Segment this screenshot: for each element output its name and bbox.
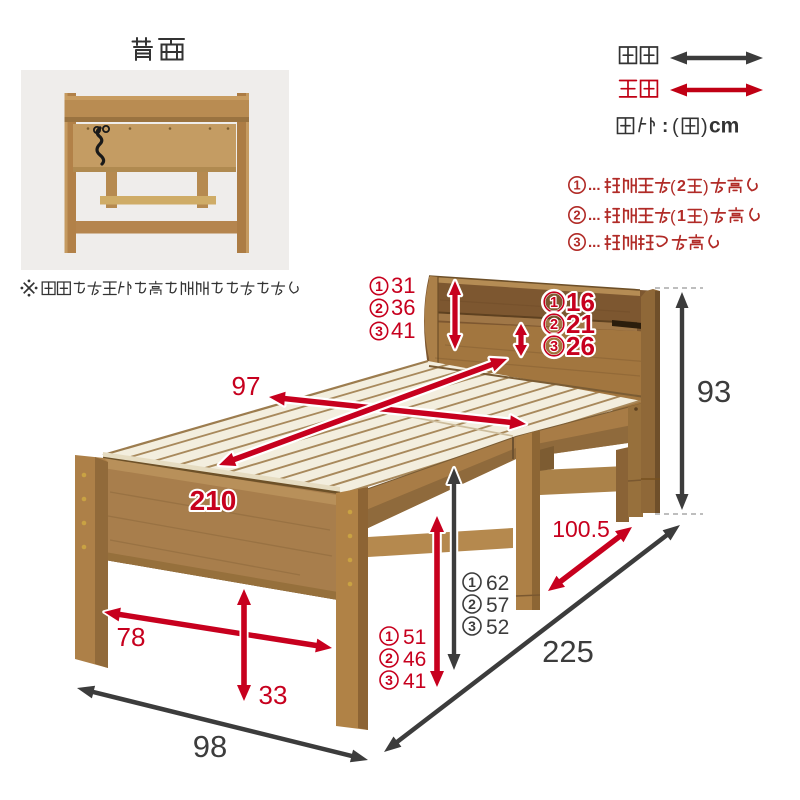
svg-text:...: ... xyxy=(588,207,601,224)
svg-text:51: 51 xyxy=(403,626,426,649)
svg-text:2: 2 xyxy=(385,650,393,666)
svg-text:52: 52 xyxy=(486,616,509,639)
svg-text:): ) xyxy=(703,207,709,226)
svg-text::: : xyxy=(662,116,668,137)
svg-text:(: ( xyxy=(672,116,679,138)
svg-text:1: 1 xyxy=(677,208,686,225)
svg-text:2: 2 xyxy=(375,300,383,316)
svg-text:100.5: 100.5 xyxy=(552,516,610,542)
svg-text:cm: cm xyxy=(709,115,739,138)
svg-text:97: 97 xyxy=(232,371,261,401)
svg-text:(: ( xyxy=(670,177,676,196)
svg-text:1: 1 xyxy=(550,295,558,311)
svg-text:(: ( xyxy=(670,207,676,226)
svg-text:3: 3 xyxy=(550,339,558,355)
svg-text:98: 98 xyxy=(193,729,227,764)
svg-text:3: 3 xyxy=(385,672,393,688)
svg-text:2: 2 xyxy=(677,178,686,195)
svg-text:225: 225 xyxy=(542,634,594,669)
svg-text:78: 78 xyxy=(117,622,146,652)
svg-text:26: 26 xyxy=(566,331,595,361)
svg-text:93: 93 xyxy=(697,374,731,409)
svg-text:2: 2 xyxy=(550,317,558,333)
svg-text:41: 41 xyxy=(391,318,415,343)
svg-text:1: 1 xyxy=(468,574,476,590)
svg-text:1: 1 xyxy=(573,178,580,193)
svg-text:...: ... xyxy=(588,177,601,194)
svg-text:1: 1 xyxy=(385,628,393,644)
svg-text:3: 3 xyxy=(468,618,476,634)
svg-text:3: 3 xyxy=(375,323,383,339)
svg-text:46: 46 xyxy=(403,648,426,671)
svg-text:3: 3 xyxy=(573,235,580,250)
svg-text:33: 33 xyxy=(259,680,288,710)
svg-text:36: 36 xyxy=(391,295,415,320)
svg-text:2: 2 xyxy=(468,596,476,612)
svg-text:): ) xyxy=(703,177,709,196)
svg-text:1: 1 xyxy=(375,278,383,294)
svg-text:62: 62 xyxy=(486,572,509,595)
svg-text:210: 210 xyxy=(190,485,237,516)
svg-text:2: 2 xyxy=(573,208,580,223)
svg-text:...: ... xyxy=(588,234,601,251)
svg-text:): ) xyxy=(701,116,708,138)
svg-text:57: 57 xyxy=(486,594,509,617)
svg-text:41: 41 xyxy=(403,670,426,693)
